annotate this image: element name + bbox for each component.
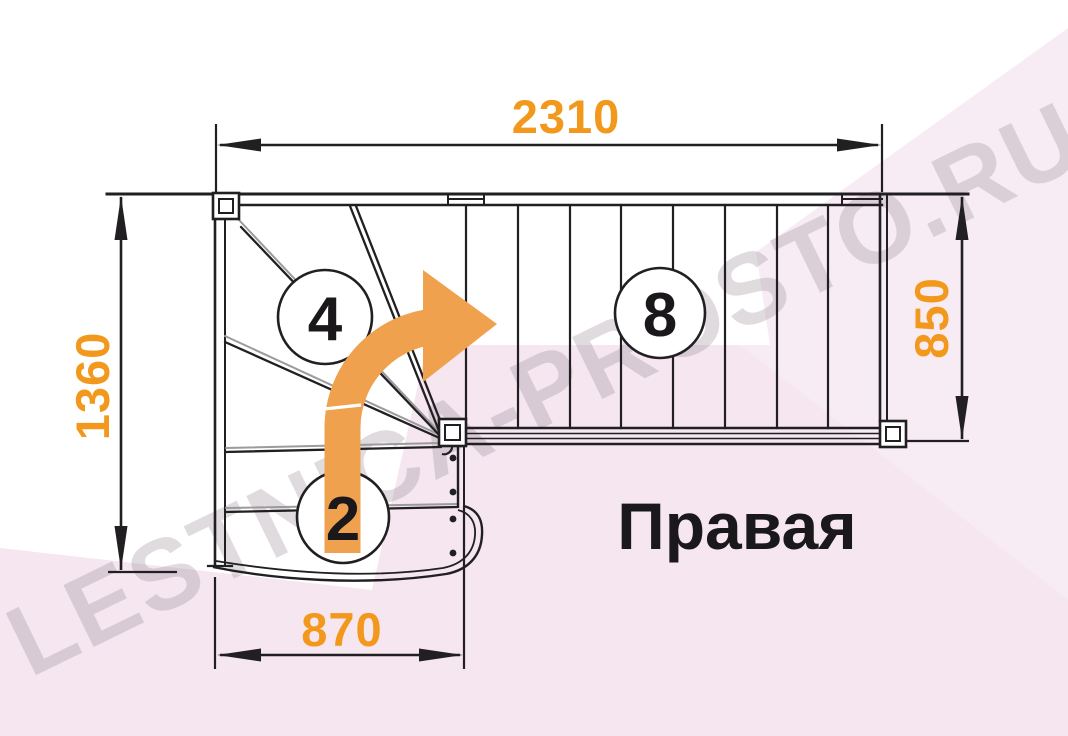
newel-post-center bbox=[439, 419, 466, 446]
dim-label-lower-flight-width: 870 bbox=[301, 603, 382, 656]
baluster-dot bbox=[450, 489, 457, 496]
staircase-plan-page: LESTNICA-PROSTO.RU bbox=[0, 0, 1068, 736]
lower-count-label: 2 bbox=[326, 485, 360, 554]
baluster-dot bbox=[450, 516, 457, 523]
orientation-label: Правая bbox=[617, 489, 856, 563]
baluster-dot bbox=[450, 455, 457, 462]
dim-label-total-length: 2310 bbox=[512, 90, 621, 143]
dim-label-upper-flight-width: 850 bbox=[905, 277, 958, 358]
baluster-dot bbox=[450, 550, 457, 557]
winder-count-label: 4 bbox=[308, 285, 343, 354]
newel-post-right bbox=[880, 421, 906, 447]
staircase-floor-plan: LESTNICA-PROSTO.RU bbox=[0, 0, 1068, 736]
upper-count-label: 8 bbox=[643, 281, 677, 350]
dim-label-total-width: 1360 bbox=[66, 332, 119, 441]
newel-post-top-left bbox=[213, 193, 239, 219]
